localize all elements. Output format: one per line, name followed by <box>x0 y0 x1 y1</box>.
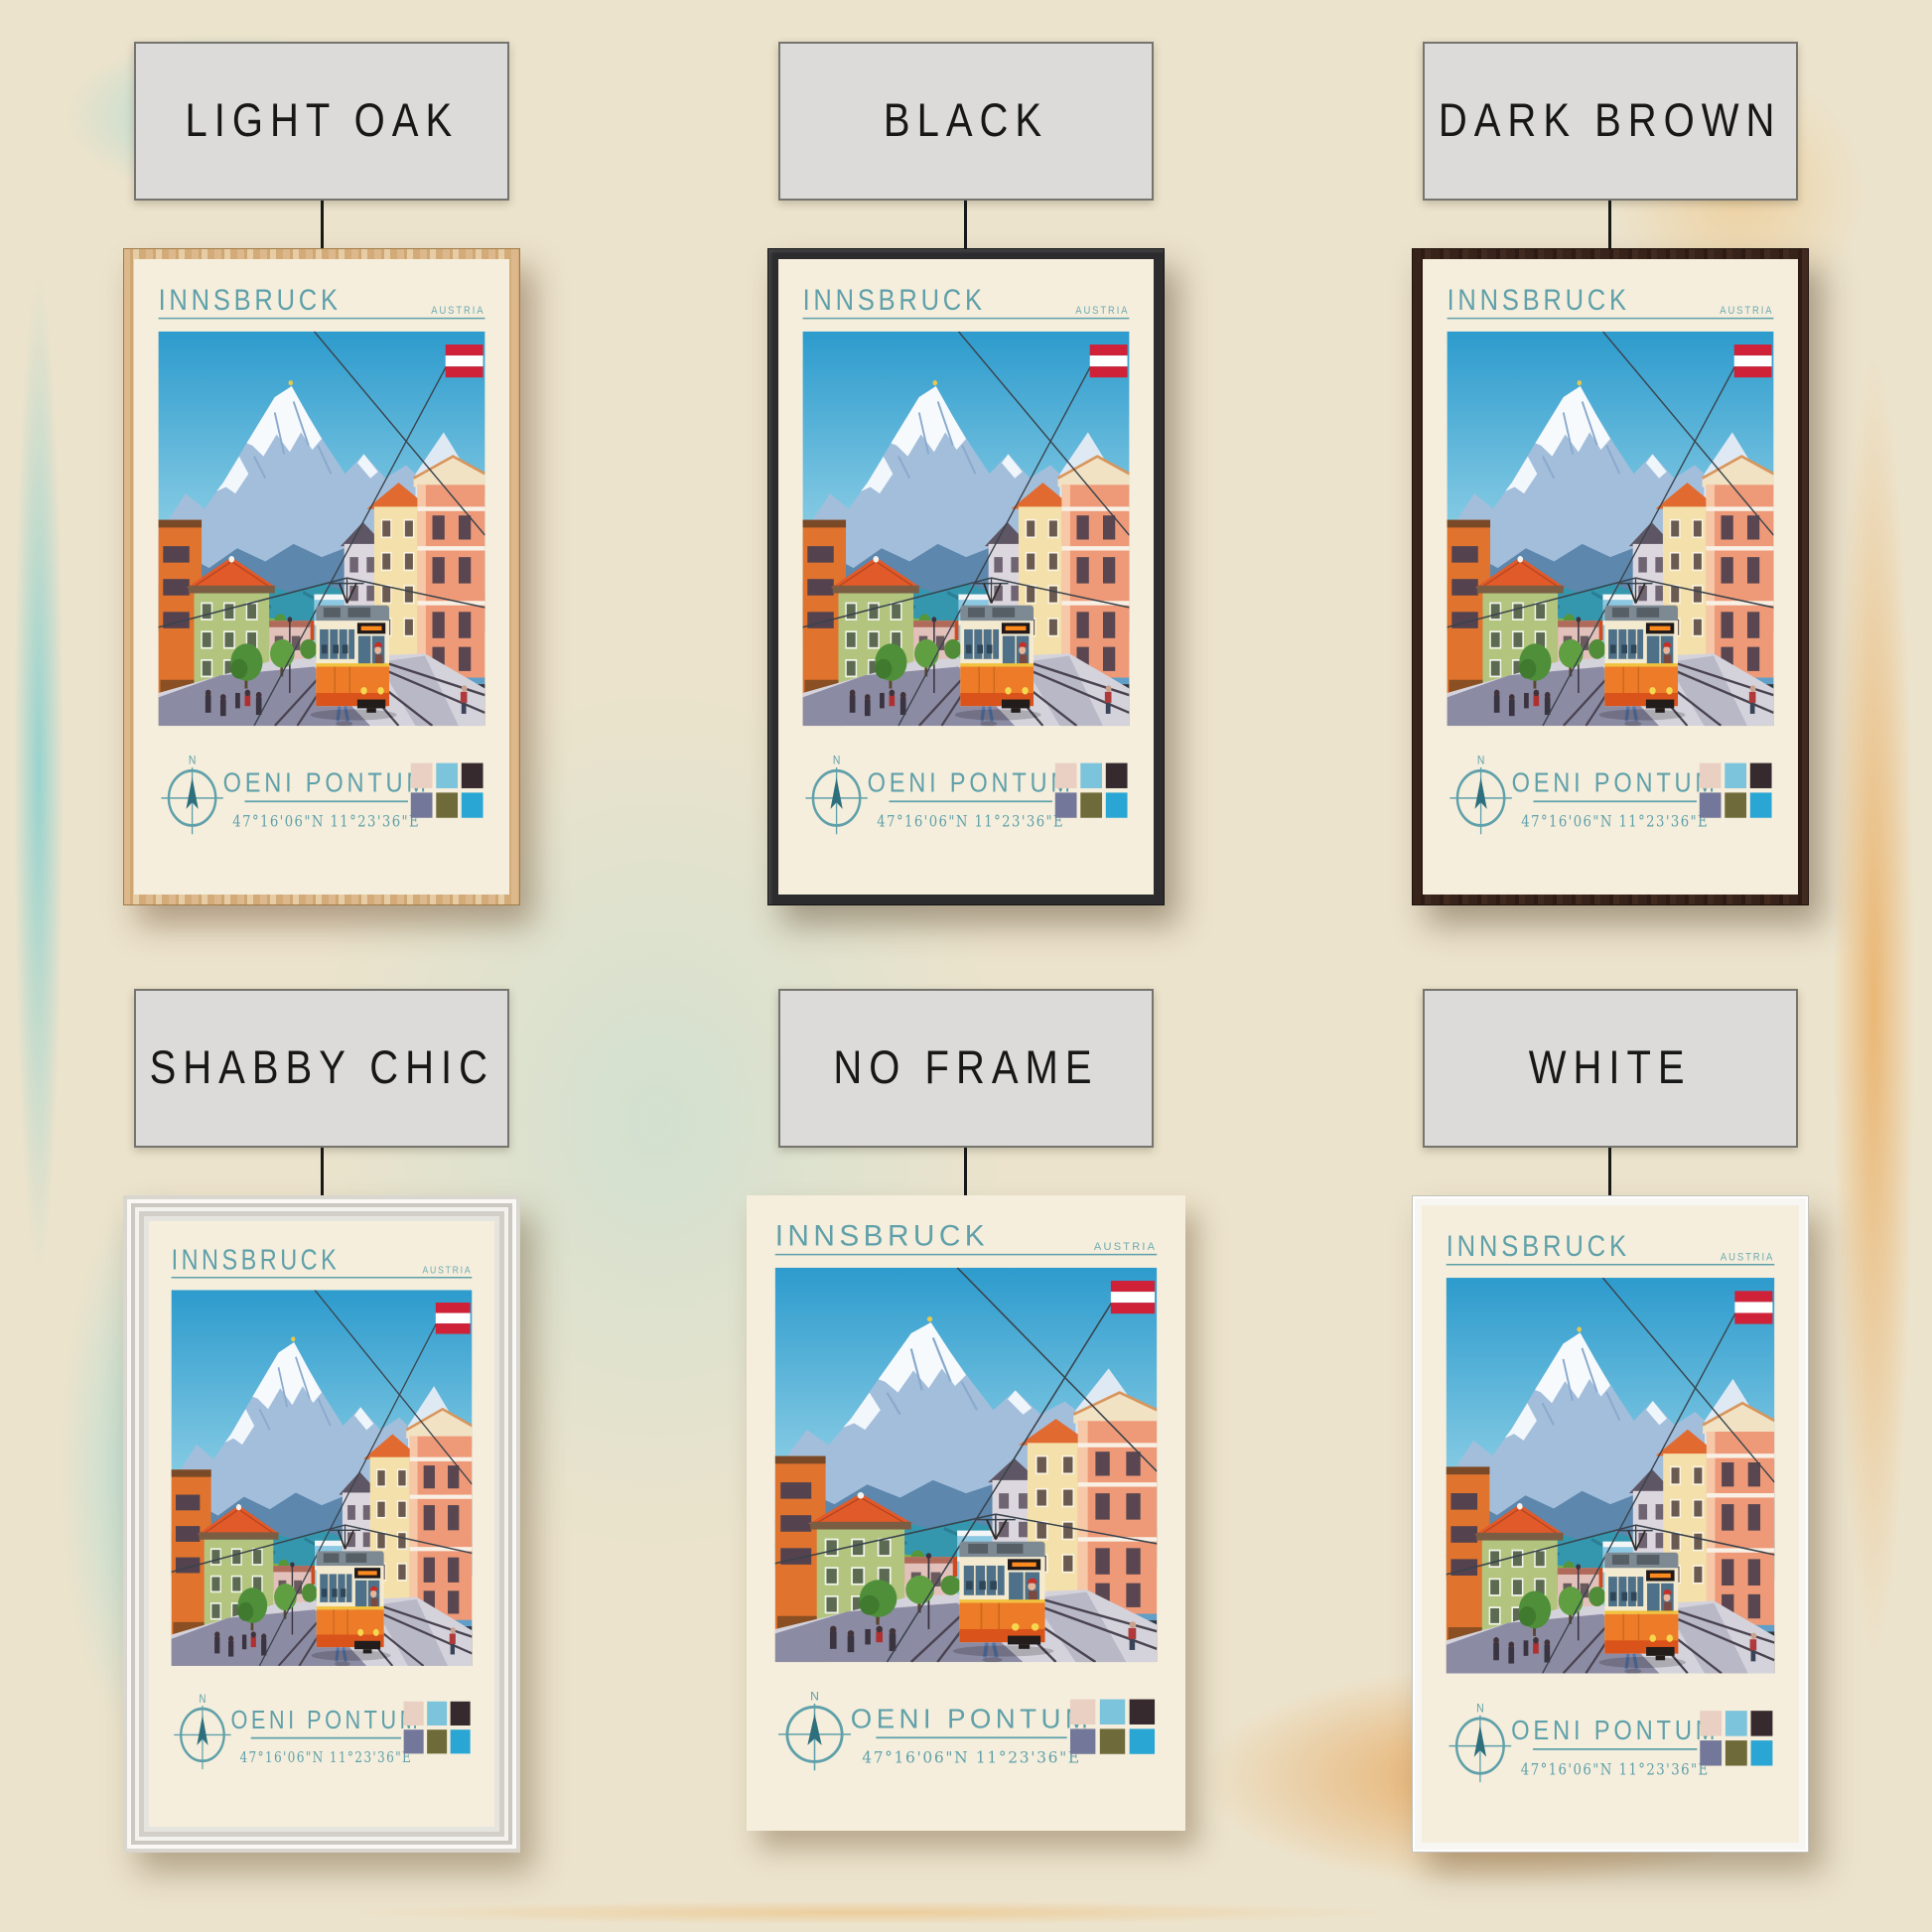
product-variant-board: LIGHT OAK BLACK DARK BROWN SHABBY CHIC <box>0 0 1932 1932</box>
variant-cell-white: WHITE <box>1412 989 1809 1853</box>
framed-poster-no-frame[interactable] <box>747 1195 1185 1831</box>
framed-poster-light-oak[interactable] <box>123 248 520 905</box>
frame-option-label: WHITE <box>1529 1041 1692 1094</box>
frame-option-card-dark-brown[interactable]: DARK BROWN <box>1423 42 1798 201</box>
connector-line <box>964 201 967 248</box>
variant-cell-no-frame: NO FRAME <box>747 989 1185 1853</box>
framed-poster-dark-brown[interactable] <box>1412 248 1809 905</box>
variant-cell-black: BLACK <box>767 42 1165 905</box>
variant-cell-shabby-chic: SHABBY CHIC <box>123 989 520 1853</box>
frame-option-card-white[interactable]: WHITE <box>1423 989 1798 1148</box>
frame-option-label: DARK BROWN <box>1439 94 1782 147</box>
poster-artwork <box>149 1221 494 1827</box>
poster-artwork <box>747 1195 1185 1831</box>
poster-artwork <box>1423 259 1798 895</box>
poster-artwork <box>778 259 1154 895</box>
frame-option-label: BLACK <box>884 94 1048 147</box>
framed-poster-shabby-chic[interactable] <box>123 1195 520 1853</box>
variant-cell-dark-brown: DARK BROWN <box>1412 42 1809 905</box>
connector-line <box>321 201 324 248</box>
frame-option-label: NO FRAME <box>833 1041 1098 1094</box>
framed-poster-white[interactable] <box>1412 1195 1809 1853</box>
poster-artwork <box>1422 1205 1799 1843</box>
connector-line <box>321 1148 324 1195</box>
poster-artwork <box>134 259 509 895</box>
frame-option-card-shabby-chic[interactable]: SHABBY CHIC <box>134 989 509 1148</box>
variant-cell-light-oak: LIGHT OAK <box>123 42 520 905</box>
frame-option-label: LIGHT OAK <box>186 94 460 147</box>
frame-option-card-no-frame[interactable]: NO FRAME <box>778 989 1154 1148</box>
connector-line <box>1608 1148 1611 1195</box>
connector-line <box>1608 201 1611 248</box>
framed-poster-black[interactable] <box>767 248 1165 905</box>
frame-option-label: SHABBY CHIC <box>150 1041 494 1094</box>
frame-option-card-black[interactable]: BLACK <box>778 42 1154 201</box>
connector-line <box>964 1148 967 1195</box>
frame-option-card-light-oak[interactable]: LIGHT OAK <box>134 42 509 201</box>
